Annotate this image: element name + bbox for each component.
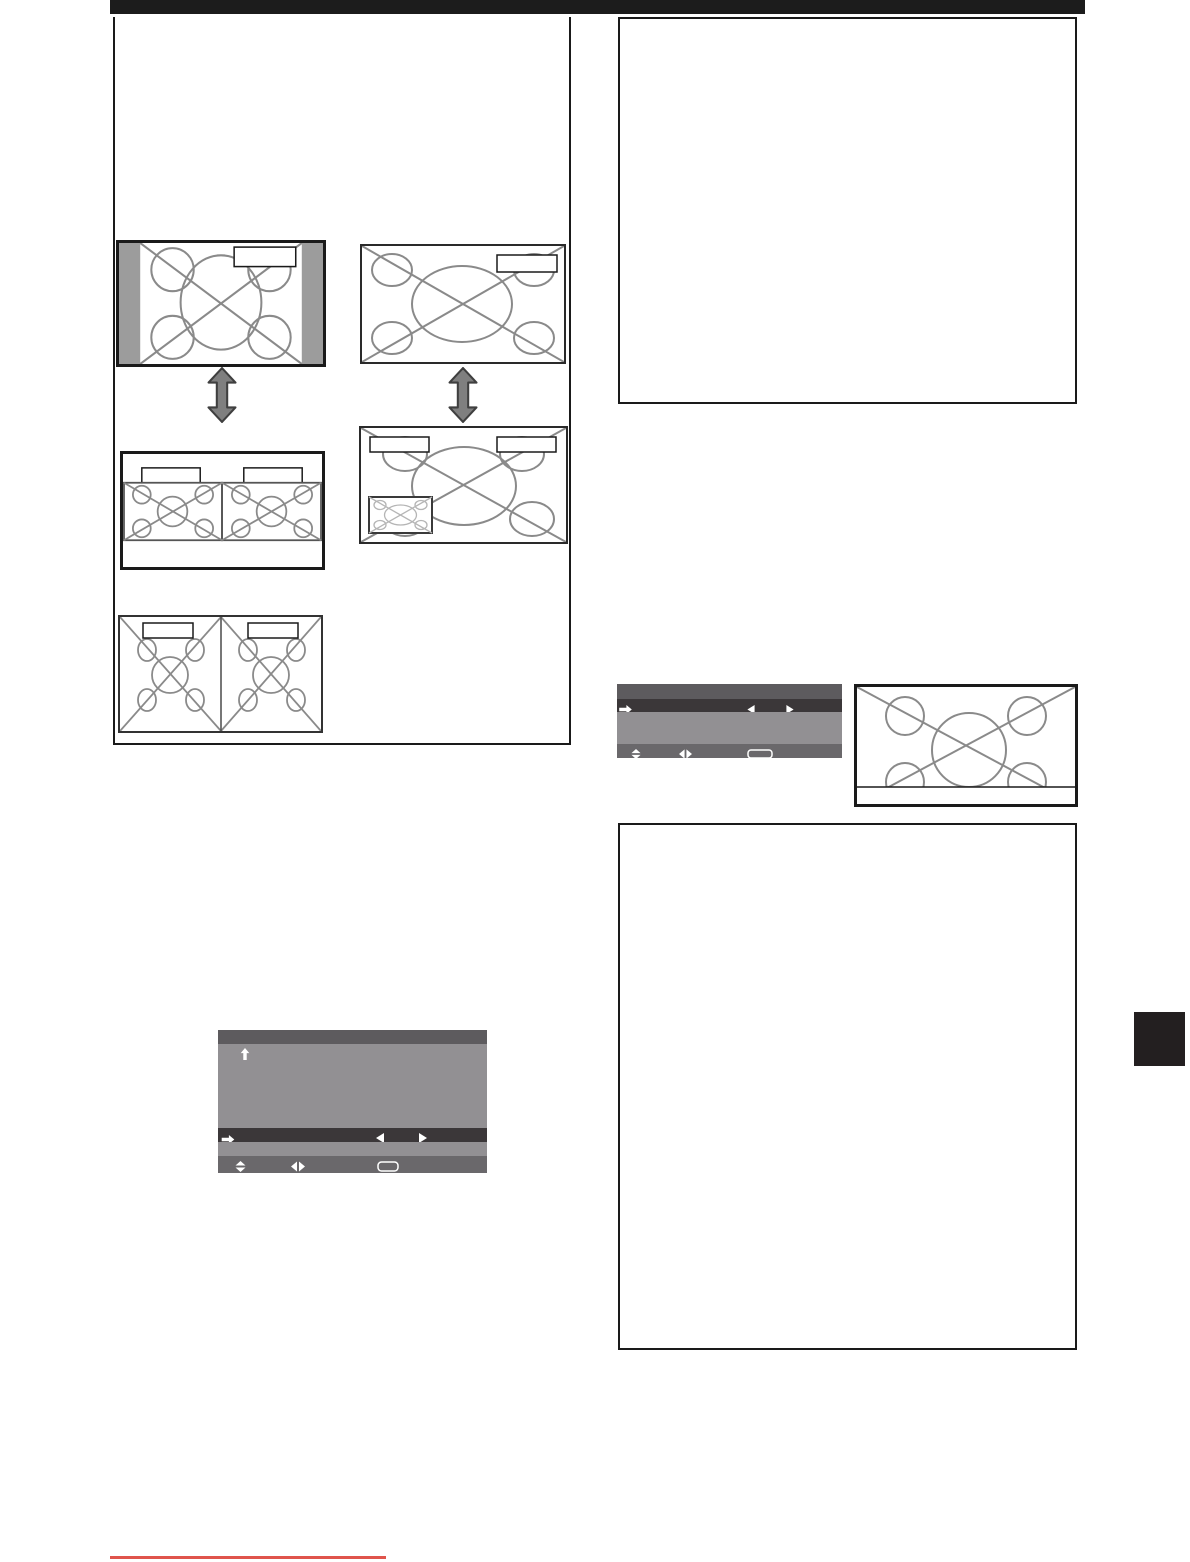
enter-button-outline-icon [377,1159,399,1173]
note-box-bottom [618,823,1077,1350]
note-box-top [618,17,1077,404]
left-right-triangles-icon [679,746,692,758]
footer-red-rule [110,1556,386,1559]
enter-button-outline-icon [747,746,773,758]
osd-footer-bar [218,1156,487,1173]
osd-spacer-row [218,1142,487,1156]
section-side-tab [1134,1012,1185,1066]
osd-footer-bar [617,744,842,758]
up-down-triangles-icon [631,746,641,758]
mode-label-box [497,255,557,272]
up-down-double-arrow-icon [442,367,484,423]
mode-label-box [234,247,296,266]
mode-label-box [248,623,298,638]
osd-body [218,1044,487,1128]
mode-label-box [370,437,429,452]
pip-sub-screen [369,497,432,533]
mode-label-box [244,468,302,483]
diagram-two-screen-split [120,451,325,570]
diagram-dual-full-screen [118,615,323,733]
pillarbox-left-bar [119,243,140,364]
osd-header-bar [218,1030,487,1044]
diagram-picture-in-picture [359,426,568,544]
pillarbox-right-bar [302,243,323,364]
osd-header-bar [617,684,842,699]
osd-body [617,712,842,744]
osd-menu-large [218,1030,487,1173]
manual-page [0,0,1190,1562]
diagram-pillarbox-4x3-screen [116,240,326,367]
up-down-triangles-icon [235,1159,246,1173]
diagram-screen-with-bottom-strip [854,684,1078,807]
mode-label-box [143,623,193,638]
up-arrow-icon [240,1047,250,1065]
mode-label-box [497,437,556,452]
osd-selected-row [617,699,842,712]
osd-menu-small [617,684,842,758]
osd-selected-row [218,1128,487,1142]
page-top-rule [110,0,1085,14]
mode-label-box [142,468,200,483]
up-down-double-arrow-icon [201,367,243,423]
diagram-full-16x9-screen [360,244,566,364]
bottom-strip [857,787,1075,804]
left-right-triangles-icon [291,1159,305,1173]
